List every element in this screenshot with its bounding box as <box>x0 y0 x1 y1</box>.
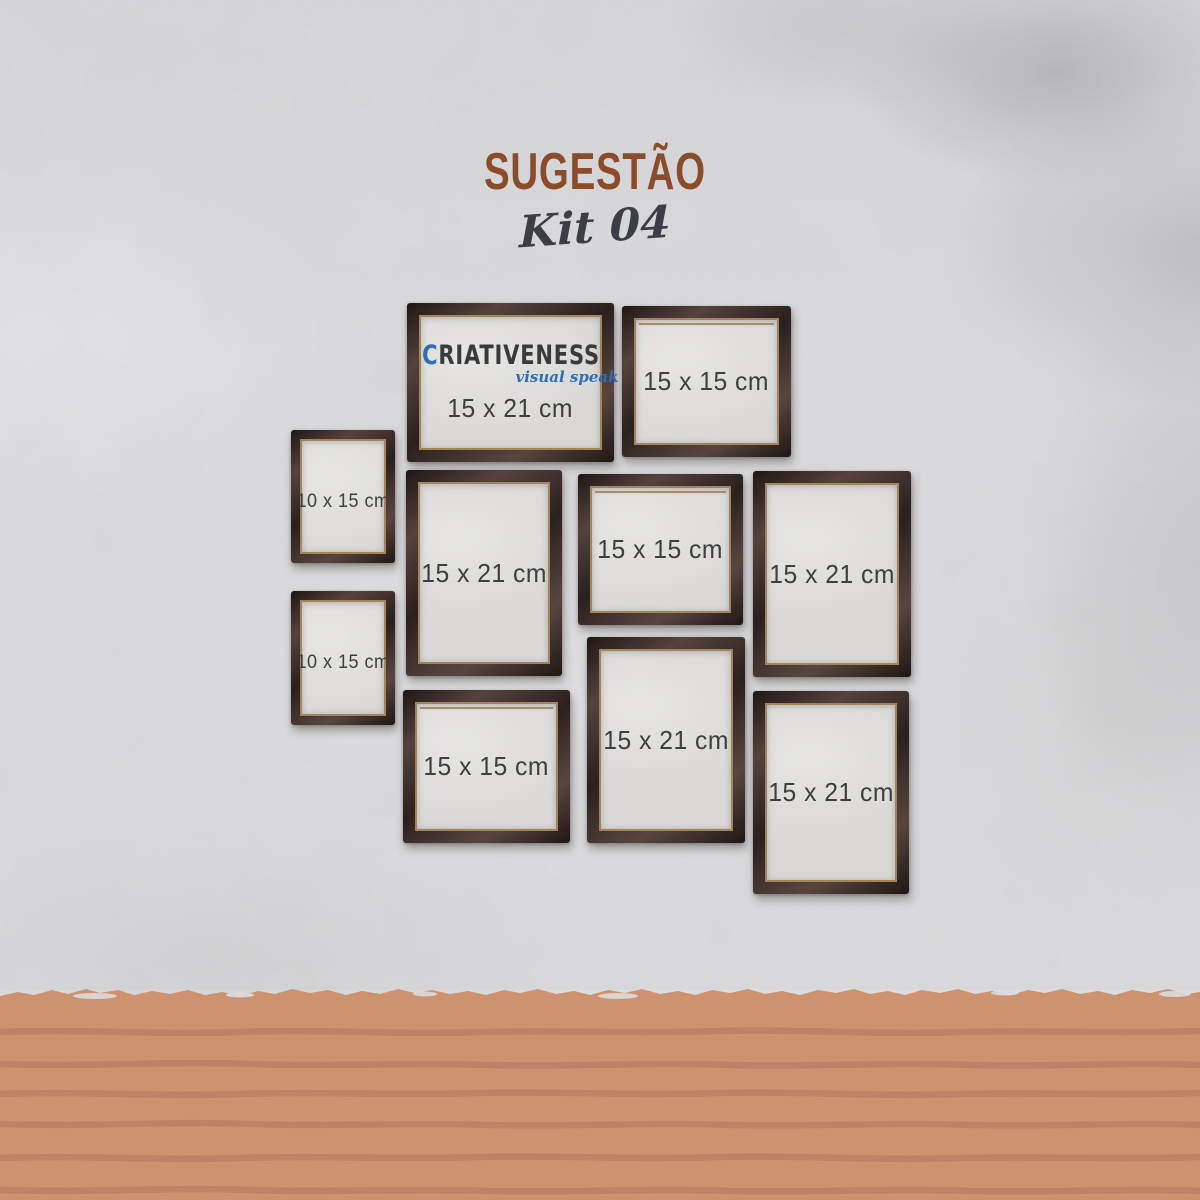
frame-size-label: 15 x 15 cm <box>644 366 770 397</box>
frame-matte: 15 x 21 cm <box>418 482 550 664</box>
picture-frame-15x15: 15 x 15 cm <box>622 306 791 457</box>
wood-floor <box>0 980 1200 1200</box>
frame-matte: 15 x 21 cm <box>765 703 897 882</box>
frame-matte: CRIATIVENESS visual speak 15 x 21 cm <box>419 315 602 450</box>
frame-size-label: 15 x 21 cm <box>769 559 895 590</box>
frame-size-label: 15 x 21 cm <box>768 777 894 808</box>
picture-frame-10x15: 10 x 15 cm <box>291 430 395 563</box>
header: SUGESTÃO Kit 04 <box>0 146 1190 250</box>
frame-matte: 10 x 15 cm <box>300 439 386 554</box>
picture-frame-10x15: 10 x 15 cm <box>291 591 395 725</box>
picture-frame-15x15: 15 x 15 cm <box>578 474 743 625</box>
picture-frame-15x21-portrait: 15 x 21 cm <box>753 691 909 894</box>
frame-matte: 15 x 21 cm <box>599 649 733 831</box>
brand-name: CRIATIVENESS <box>422 342 600 369</box>
brand-tagline: visual speak <box>516 370 619 385</box>
picture-frame-15x21-portrait: 15 x 21 cm <box>587 637 745 843</box>
frame-size-label: 15 x 21 cm <box>603 725 729 756</box>
frame-size-label: 10 x 15 cm <box>296 652 389 674</box>
frame-size-label: 10 x 15 cm <box>296 491 389 513</box>
picture-frame-15x15: 15 x 15 cm <box>403 690 570 843</box>
frame-size-label: 15 x 21 cm <box>448 393 574 424</box>
picture-frame-15x21-landscape: CRIATIVENESS visual speak 15 x 21 cm <box>407 303 614 462</box>
frame-matte: 15 x 15 cm <box>590 486 731 613</box>
picture-frame-15x21-portrait: 15 x 21 cm <box>753 471 911 677</box>
page-title: SUGESTÃO <box>484 146 706 198</box>
brand-logo: CRIATIVENESS visual speak <box>397 342 625 385</box>
frame-matte: 15 x 15 cm <box>415 702 558 831</box>
frame-size-label: 15 x 21 cm <box>421 558 547 589</box>
frame-size-label: 15 x 15 cm <box>598 534 724 565</box>
kit-subtitle: Kit 04 <box>519 201 670 256</box>
frame-size-label: 15 x 15 cm <box>424 751 550 782</box>
picture-frame-15x21-portrait: 15 x 21 cm <box>406 470 562 676</box>
frame-matte: 15 x 15 cm <box>634 318 779 445</box>
frame-matte: 15 x 21 cm <box>765 483 899 665</box>
frame-matte: 10 x 15 cm <box>300 600 386 716</box>
